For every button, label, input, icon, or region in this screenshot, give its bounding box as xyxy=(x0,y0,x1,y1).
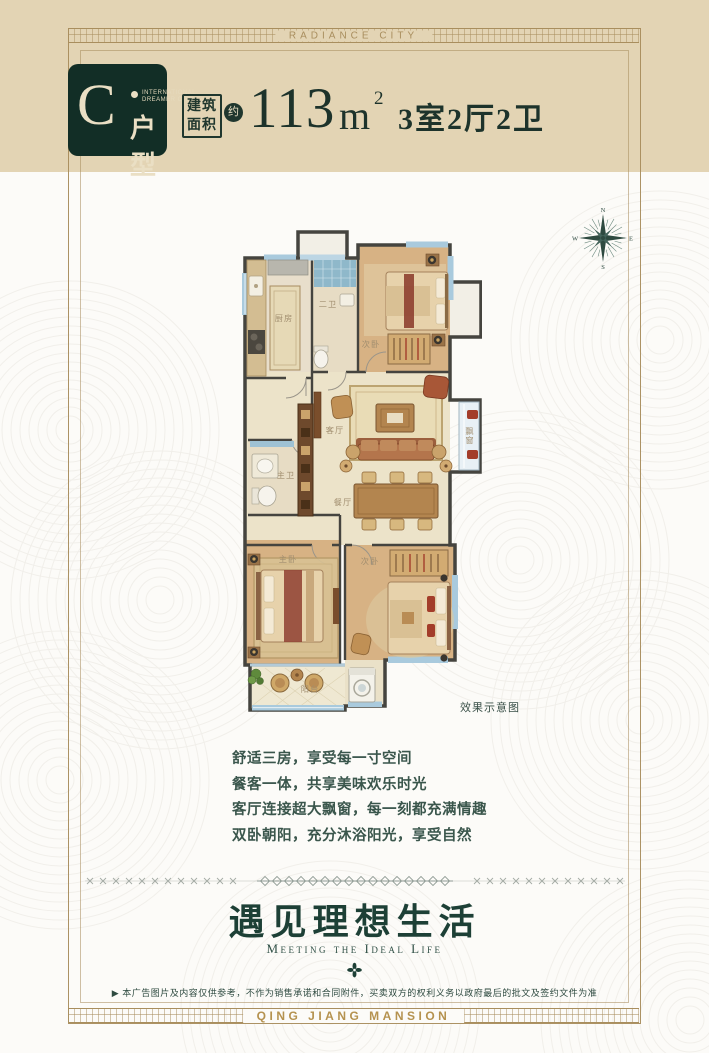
compass-e: E xyxy=(629,236,633,243)
logo-degree-dot-icon xyxy=(131,91,138,98)
floorplan-drawing: 厨房 二卫 次卧 客厅 飘窗 主卫 餐厅 主卧 次卧 阳台 xyxy=(240,228,482,714)
room-label-master: 主卧 xyxy=(279,554,297,564)
logo-letter: C xyxy=(77,76,116,134)
room-spec: 3室2厅2卫 xyxy=(398,94,545,138)
washing-machine xyxy=(349,668,375,702)
room-label-bedroom-top: 次卧 xyxy=(362,339,380,349)
unit-type-logo: C INTERNATIONAL DREAMER CITY 户型 xyxy=(68,64,167,156)
slogan-subtitle: Meeting the Ideal Life xyxy=(0,941,709,957)
section-divider-ornament xyxy=(85,875,625,887)
approx-badge: 约 xyxy=(224,103,243,122)
room-label-dining: 餐厅 xyxy=(334,498,352,507)
room-label-masterbath: 主卫 xyxy=(277,470,295,480)
room-label-kitchen: 厨房 xyxy=(275,313,293,323)
master-bedroom-furniture xyxy=(248,554,339,658)
room-label-balcony: 阳台 xyxy=(301,684,319,694)
room-label-baywindow: 飘窗 xyxy=(465,427,474,445)
compass-w: W xyxy=(572,236,579,243)
compass-n: N xyxy=(601,207,606,214)
slogan-title: 遇见理想生活 xyxy=(0,893,709,945)
top-border-ornament: RADIANCE CITY xyxy=(68,28,639,43)
top-banner-label: RADIANCE CITY xyxy=(275,30,432,41)
feature-line: 双卧朝阳，充分沐浴阳光，享受自然 xyxy=(232,824,487,850)
plan-caption: 效果示意图 xyxy=(460,699,520,715)
room-label-living: 客厅 xyxy=(326,425,344,435)
feature-line: 舒适三房，享受每一寸空间 xyxy=(232,747,487,773)
bottom-banner-label: QING JIANG MANSION xyxy=(243,1009,465,1023)
area-exponent: 2 xyxy=(374,88,384,110)
room-label-bath2: 二卫 xyxy=(319,300,337,309)
flower-ornament-icon xyxy=(347,962,362,978)
bottom-border-ornament: QING JIANG MANSION xyxy=(68,1008,639,1023)
feature-line: 客厅连接超大飘窗，每一刻都充满情趣 xyxy=(232,798,487,824)
hallway-cabinet xyxy=(298,404,313,516)
feature-line: 餐客一体，共享美味欢乐时光 xyxy=(232,773,487,799)
disclaimer-text: ▶ 本广告图片及内容仅供参考，不作为销售承诺和合同附件，买卖双方的权利义务以政府… xyxy=(0,986,709,999)
area-value: 113 xyxy=(249,80,335,137)
poster-page: RADIANCE CITY QING JIANG MANSION C INTER… xyxy=(0,0,709,1053)
dining-room-furniture xyxy=(354,472,438,530)
room-label-bedroom-bottom: 次卧 xyxy=(361,556,379,566)
area-unit: m xyxy=(339,96,370,136)
compass-s: S xyxy=(601,264,605,271)
logo-unit-type: 户型 xyxy=(130,108,167,182)
building-area-label-box: 建筑 面积 xyxy=(182,94,222,138)
compass-icon: N E S W xyxy=(570,205,636,271)
feature-list: 舒适三房，享受每一寸空间 餐客一体，共享美味欢乐时光 客厅连接超大飘窗，每一刻都… xyxy=(232,747,487,849)
